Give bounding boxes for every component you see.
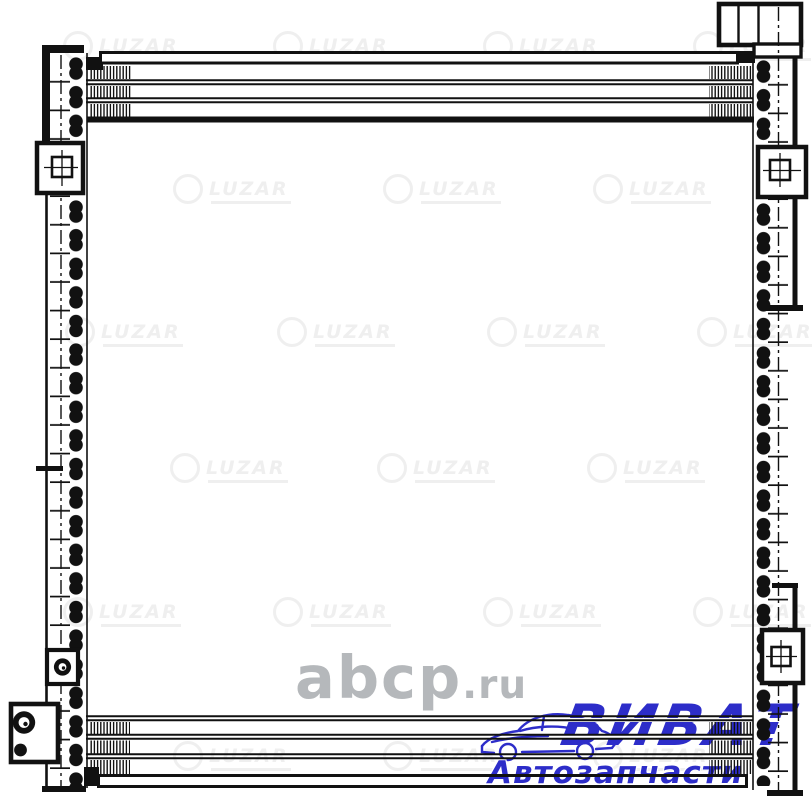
left-fin-edge [48,53,88,788]
luzar-watermark-label: LUZAR [729,603,809,622]
luzar-watermark-label: LUZAR [101,323,181,342]
abcp-watermark-tld: .ru [462,666,527,705]
luzar-watermark-label: LUZAR [629,747,709,766]
luzar-watermark: LUZAR [587,453,703,483]
left-tank [36,45,86,792]
luzar-watermark: LUZAR [483,31,599,61]
luzar-watermark-label: LUZAR [419,180,499,199]
luzar-emblem-icon [693,597,723,627]
brand-watermark-layer: LUZAR LUZAR LUZAR LUZAR LUZAR LUZAR LUZA… [0,0,812,800]
luzar-watermark: LUZAR [273,31,389,61]
luzar-watermark-label: LUZAR [729,37,809,56]
luzar-watermark: LUZAR [593,741,709,771]
luzar-watermark: LUZAR [63,31,179,61]
luzar-emblem-icon [593,174,623,204]
left-bottom-bracket [47,650,78,684]
vivat-subtitle: Автозапчасти [488,758,744,789]
luzar-watermark: LUZAR [693,31,809,61]
luzar-emblem-icon [697,317,727,347]
luzar-watermark-label: LUZAR [206,459,286,478]
luzar-watermark-label: LUZAR [313,323,393,342]
luzar-emblem-icon [377,453,407,483]
vivat-logo: ВИВАТ Автозапчасти [478,694,812,800]
luzar-watermark-label: LUZAR [519,37,599,56]
luzar-watermark: LUZAR [170,453,286,483]
luzar-watermark: LUZAR [377,453,493,483]
luzar-watermark: LUZAR [487,317,603,347]
luzar-emblem-icon [173,741,203,771]
luzar-emblem-icon [63,31,93,61]
car-outline-icon [478,702,618,764]
right-fin-edge [751,60,791,790]
luzar-emblem-icon [173,174,203,204]
luzar-watermark-label: LUZAR [523,323,603,342]
luzar-watermark: LUZAR [693,597,809,627]
luzar-watermark: LUZAR [697,317,812,347]
luzar-emblem-icon [63,597,93,627]
luzar-watermark: LUZAR [277,317,393,347]
luzar-watermark: LUZAR [173,741,289,771]
abcp-watermark-name: abcp [295,648,462,707]
luzar-emblem-icon [483,597,513,627]
luzar-emblem-icon [277,317,307,347]
luzar-watermark-label: LUZAR [309,37,389,56]
luzar-emblem-icon [273,31,303,61]
luzar-watermark-label: LUZAR [209,180,289,199]
luzar-watermark-label: LUZAR [309,603,389,622]
product-image: LUZAR LUZAR LUZAR LUZAR LUZAR LUZAR LUZA… [0,0,812,800]
right-bottom-bracket [762,630,803,683]
luzar-watermark: LUZAR [173,174,289,204]
luzar-emblem-icon [383,741,413,771]
luzar-emblem-icon [487,317,517,347]
luzar-emblem-icon [383,174,413,204]
luzar-watermark-label: LUZAR [419,747,499,766]
luzar-watermark-label: LUZAR [519,603,599,622]
luzar-watermark-label: LUZAR [629,180,709,199]
luzar-watermark: LUZAR [273,597,389,627]
abcp-watermark: abcp.ru [295,648,527,707]
luzar-watermark: LUZAR [483,597,599,627]
luzar-emblem-icon [273,597,303,627]
luzar-watermark: LUZAR [63,597,179,627]
core-top-tubes [86,53,754,123]
luzar-emblem-icon [170,453,200,483]
condenser-technical-drawing [0,0,812,800]
vivat-title: ВИВАТ [557,698,800,755]
luzar-watermark: LUZAR [65,317,181,347]
logo-stripe [556,734,804,738]
luzar-watermark-label: LUZAR [209,747,289,766]
luzar-emblem-icon [693,31,723,61]
luzar-watermark: LUZAR [593,174,709,204]
luzar-emblem-icon [483,31,513,61]
left-top-bracket [37,143,83,193]
right-tank [719,4,803,796]
luzar-watermark-label: LUZAR [733,323,812,342]
luzar-watermark-label: LUZAR [99,37,179,56]
luzar-watermark-label: LUZAR [413,459,493,478]
logo-stripe [556,718,804,722]
luzar-emblem-icon [65,317,95,347]
inlet-fitting-block [11,704,58,762]
luzar-watermark-label: LUZAR [623,459,703,478]
luzar-emblem-icon [593,741,623,771]
luzar-emblem-icon [587,453,617,483]
core-bottom-tubes [84,716,753,786]
right-top-bracket [758,147,806,197]
luzar-watermark: LUZAR [383,174,499,204]
luzar-watermark: LUZAR [383,741,499,771]
luzar-watermark-label: LUZAR [99,603,179,622]
